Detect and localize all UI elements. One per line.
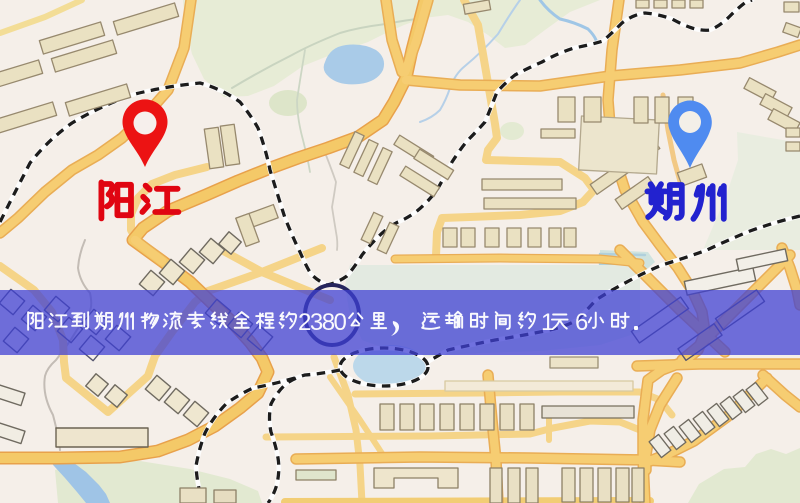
svg-text:6: 6 bbox=[575, 309, 588, 336]
svg-text:1: 1 bbox=[541, 309, 554, 336]
svg-text:2380: 2380 bbox=[298, 309, 347, 336]
